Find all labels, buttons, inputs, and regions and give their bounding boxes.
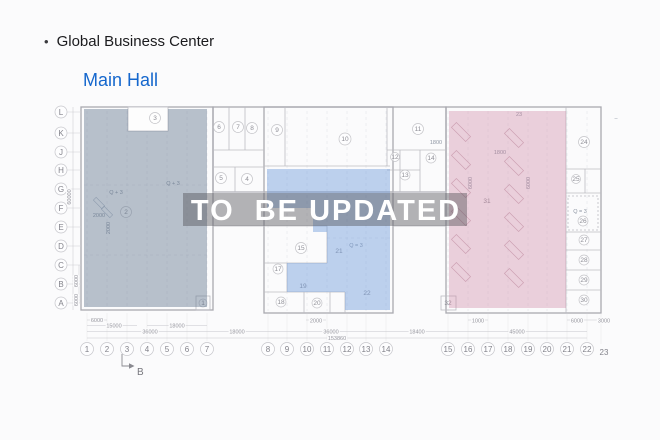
room-13: 13 bbox=[400, 170, 410, 180]
svg-text:17: 17 bbox=[274, 266, 282, 273]
svg-text:15: 15 bbox=[444, 345, 453, 354]
row-label-B: B bbox=[55, 278, 67, 290]
col-axis: 1 2 3 4 5 6 7 8 9 10 11 12 13 14 15 16 1… bbox=[81, 343, 609, 358]
svg-text:1800: 1800 bbox=[430, 140, 442, 146]
svg-text:3000: 3000 bbox=[598, 319, 610, 325]
svg-text:10: 10 bbox=[341, 136, 349, 143]
svg-text:30: 30 bbox=[580, 297, 588, 304]
col-label-17: 17 bbox=[482, 343, 495, 356]
col-label-5: 5 bbox=[161, 343, 174, 356]
slide: • Global Business Center Main Hall bbox=[0, 0, 660, 440]
watermark-text: TO BE UPDATED bbox=[191, 195, 461, 227]
col-label-4: 4 bbox=[141, 343, 154, 356]
col-label-12: 12 bbox=[341, 343, 354, 356]
room-20: 20 bbox=[312, 298, 322, 308]
col-label-10: 10 bbox=[301, 343, 314, 356]
col-label-18: 18 bbox=[502, 343, 515, 356]
watermark: TO BE UPDATED bbox=[183, 193, 467, 227]
col-label-6: 6 bbox=[181, 343, 194, 356]
svg-text:12: 12 bbox=[391, 154, 399, 161]
svg-text:1000: 1000 bbox=[472, 319, 484, 325]
svg-text:5: 5 bbox=[165, 345, 170, 354]
row-label-E: E bbox=[55, 221, 67, 233]
room-14: 14 bbox=[426, 153, 436, 163]
room-12: 12 bbox=[391, 153, 400, 162]
svg-text:13: 13 bbox=[401, 172, 409, 179]
svg-text:8: 8 bbox=[266, 345, 271, 354]
svg-text:20: 20 bbox=[543, 345, 552, 354]
room-10: 10 bbox=[339, 133, 351, 145]
svg-text:F: F bbox=[59, 204, 64, 213]
svg-text:6000: 6000 bbox=[91, 318, 103, 324]
svg-text:8: 8 bbox=[250, 125, 254, 132]
svg-text:E: E bbox=[58, 223, 63, 232]
svg-text:2: 2 bbox=[105, 345, 110, 354]
row-label-J: J bbox=[55, 146, 67, 158]
svg-text:6000: 6000 bbox=[74, 275, 80, 287]
svg-text:16: 16 bbox=[464, 345, 473, 354]
left-dimensions: 60000 6000 6000 bbox=[67, 107, 80, 310]
svg-text:14: 14 bbox=[382, 345, 391, 354]
svg-text:9: 9 bbox=[285, 345, 290, 354]
zone-middle bbox=[267, 169, 390, 310]
room-29: 29 bbox=[579, 275, 589, 285]
svg-text:36000: 36000 bbox=[323, 330, 338, 336]
section-marker: B bbox=[122, 354, 144, 378]
svg-text:5: 5 bbox=[219, 175, 223, 182]
svg-text:10: 10 bbox=[303, 345, 312, 354]
svg-text:24: 24 bbox=[580, 139, 588, 146]
col-label-11: 11 bbox=[321, 343, 334, 356]
col-label-8: 8 bbox=[262, 343, 275, 356]
col-label-2: 2 bbox=[101, 343, 114, 356]
col-label-13: 13 bbox=[360, 343, 373, 356]
svg-text:18400: 18400 bbox=[409, 330, 424, 336]
col-label-15: 15 bbox=[442, 343, 455, 356]
col-label-23: 23 bbox=[600, 348, 609, 357]
svg-text:H: H bbox=[58, 166, 64, 175]
svg-text:D: D bbox=[58, 242, 64, 251]
svg-text:A: A bbox=[58, 299, 64, 308]
svg-text:6000: 6000 bbox=[74, 294, 80, 306]
svg-text:B: B bbox=[137, 367, 144, 378]
row-label-F: F bbox=[55, 202, 67, 214]
svg-text:60000: 60000 bbox=[67, 189, 73, 204]
svg-text:3: 3 bbox=[125, 345, 130, 354]
svg-text:3: 3 bbox=[153, 115, 157, 122]
svg-text:18000: 18000 bbox=[229, 330, 244, 336]
svg-text:21: 21 bbox=[563, 345, 572, 354]
room-24: 24 bbox=[579, 137, 590, 148]
svg-text:2000: 2000 bbox=[310, 319, 322, 325]
svg-text:K: K bbox=[58, 129, 64, 138]
svg-text:153860: 153860 bbox=[328, 336, 346, 342]
svg-text:27: 27 bbox=[580, 237, 588, 244]
svg-text:12: 12 bbox=[343, 345, 352, 354]
svg-text:28: 28 bbox=[580, 257, 588, 264]
row-label-L: L bbox=[55, 106, 67, 118]
svg-text:20: 20 bbox=[313, 300, 321, 307]
room-5: 5 bbox=[216, 173, 227, 184]
svg-text:11: 11 bbox=[323, 345, 332, 354]
col-label-19: 19 bbox=[522, 343, 535, 356]
col-label-9: 9 bbox=[281, 343, 294, 356]
col-label-3: 3 bbox=[121, 343, 134, 356]
col-label-22: 22 bbox=[581, 343, 594, 356]
room-7: 7 bbox=[233, 122, 244, 133]
room-18: 18 bbox=[276, 297, 286, 307]
bottom-dimensions: 6000 2000 1000 6000 3000 15000 18000 360… bbox=[87, 313, 610, 344]
row-label-H: H bbox=[55, 164, 67, 176]
svg-text:7: 7 bbox=[205, 345, 210, 354]
svg-text:L: L bbox=[59, 108, 64, 117]
svg-text:G: G bbox=[58, 185, 64, 194]
room-17: 17 bbox=[273, 264, 283, 274]
svg-text:25: 25 bbox=[572, 176, 580, 183]
room-6: 6 bbox=[214, 122, 225, 133]
room-25: 25 bbox=[572, 175, 581, 184]
room-27: 27 bbox=[579, 235, 589, 245]
row-label-C: C bbox=[55, 259, 67, 271]
row-label-D: D bbox=[55, 240, 67, 252]
svg-text:6000: 6000 bbox=[571, 319, 583, 325]
room-26: 26 bbox=[578, 216, 588, 226]
svg-text:18: 18 bbox=[504, 345, 513, 354]
svg-text:36000: 36000 bbox=[142, 330, 157, 336]
svg-text:4: 4 bbox=[145, 345, 150, 354]
col-label-14: 14 bbox=[380, 343, 393, 356]
svg-text:17: 17 bbox=[484, 345, 493, 354]
col-label-20: 20 bbox=[541, 343, 554, 356]
svg-text:1: 1 bbox=[85, 345, 90, 354]
row-label-G: G bbox=[55, 183, 67, 195]
svg-text:18: 18 bbox=[277, 299, 285, 306]
floor-plan: 1 2 3 4 5 6 7 8 9 10 11 12 13 14 15 17 1… bbox=[0, 0, 660, 440]
svg-text:B: B bbox=[58, 280, 63, 289]
svg-text:6: 6 bbox=[185, 345, 190, 354]
room-15: 15 bbox=[296, 243, 307, 254]
room-8: 8 bbox=[247, 123, 258, 134]
svg-text:14: 14 bbox=[427, 155, 435, 162]
svg-text:6: 6 bbox=[217, 124, 221, 131]
col-label-1: 1 bbox=[81, 343, 94, 356]
svg-text:13: 13 bbox=[362, 345, 371, 354]
room-30: 30 bbox=[579, 295, 589, 305]
col-label-21: 21 bbox=[561, 343, 574, 356]
svg-text:9: 9 bbox=[275, 127, 279, 134]
svg-text:Q = 3: Q = 3 bbox=[573, 209, 587, 215]
svg-text:15: 15 bbox=[297, 245, 305, 252]
svg-text:29: 29 bbox=[580, 277, 588, 284]
room-3: 3 bbox=[150, 113, 161, 124]
svg-text:22: 22 bbox=[583, 345, 592, 354]
col-label-7: 7 bbox=[201, 343, 214, 356]
room-11: 11 bbox=[413, 124, 424, 135]
svg-text:J: J bbox=[59, 148, 63, 157]
svg-text:45000: 45000 bbox=[509, 330, 524, 336]
svg-text:7: 7 bbox=[236, 124, 240, 131]
svg-text:26: 26 bbox=[579, 218, 587, 225]
room-28: 28 bbox=[579, 255, 589, 265]
room-4: 4 bbox=[242, 174, 253, 185]
svg-text:19: 19 bbox=[524, 345, 533, 354]
row-label-K: K bbox=[55, 127, 67, 139]
svg-text:11: 11 bbox=[415, 126, 422, 133]
svg-text:15000: 15000 bbox=[106, 324, 121, 330]
svg-text:–: – bbox=[614, 116, 618, 122]
svg-text:18000: 18000 bbox=[169, 324, 184, 330]
svg-text:C: C bbox=[58, 261, 64, 270]
room-9: 9 bbox=[272, 125, 283, 136]
svg-text:4: 4 bbox=[245, 176, 249, 183]
row-label-A: A bbox=[55, 297, 67, 309]
col-label-16: 16 bbox=[462, 343, 475, 356]
